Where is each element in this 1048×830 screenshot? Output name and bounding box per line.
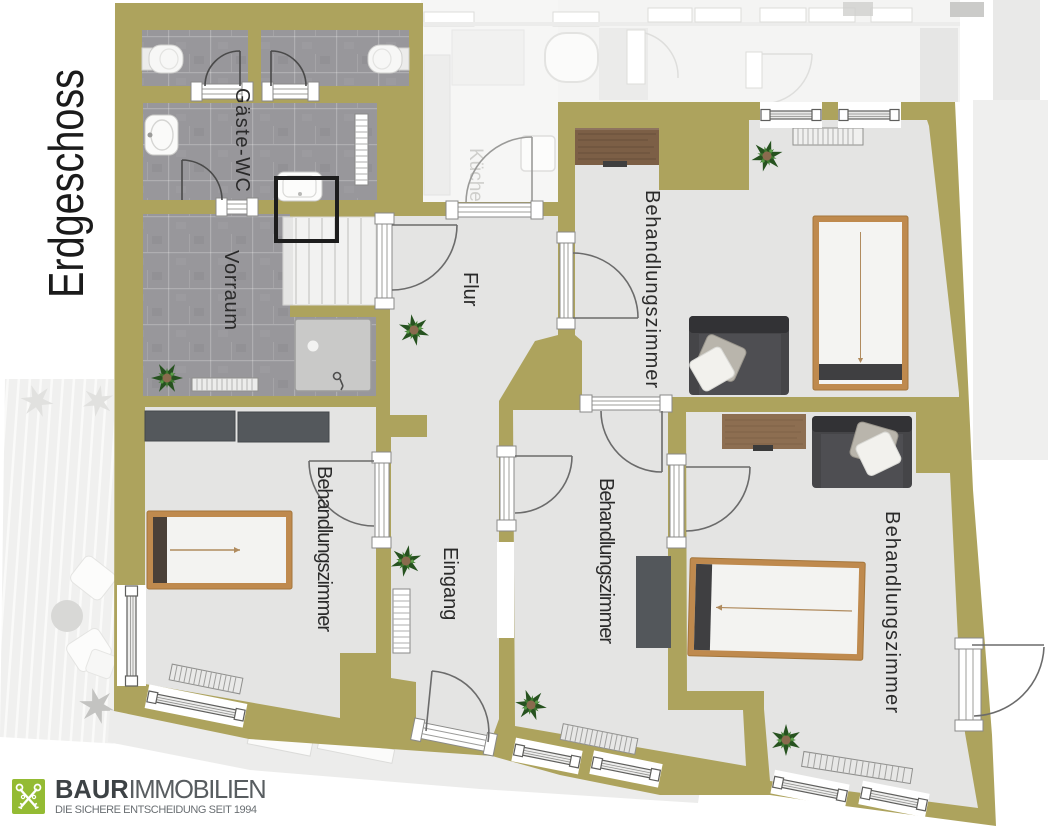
svg-text:Behandlungszimmer: Behandlungszimmer	[881, 511, 903, 713]
svg-text:BAURIMMOBILIEN: BAURIMMOBILIEN	[55, 776, 267, 804]
svg-text:Behandlungszimmer: Behandlungszimmer	[641, 190, 663, 388]
svg-text:Behandlungszimmer: Behandlungszimmer	[313, 466, 335, 632]
svg-text:DIE SICHERE ENTSCHEIDUNG SEIT: DIE SICHERE ENTSCHEIDUNG SEIT 1994	[55, 804, 257, 816]
svg-text:Behandlungszimmer: Behandlungszimmer	[595, 478, 617, 644]
svg-text:Eingang: Eingang	[439, 547, 461, 620]
svg-text:Erdgeschoss: Erdgeschoss	[40, 69, 94, 298]
svg-text:Vorraum: Vorraum	[220, 250, 242, 330]
svg-text:Küche: Küche	[465, 148, 486, 202]
svg-text:Flur: Flur	[459, 272, 481, 307]
